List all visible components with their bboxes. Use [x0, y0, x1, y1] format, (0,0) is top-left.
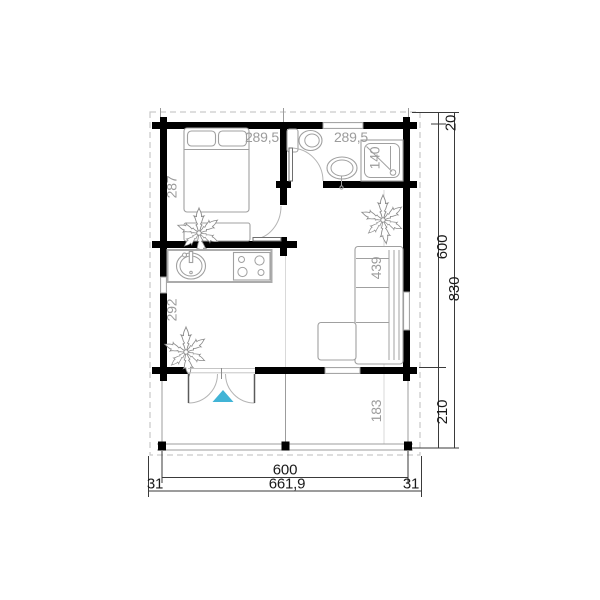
window	[325, 368, 360, 374]
railing-post	[158, 442, 166, 451]
window	[404, 292, 410, 330]
dim-label-terrace-depth-inner: 183	[368, 399, 384, 422]
dim-label-terrace-depth: 210	[434, 400, 451, 424]
dim-label-living-depth-right: 439	[368, 256, 384, 279]
window	[161, 277, 167, 293]
toilet-bowl	[299, 131, 322, 151]
plant-icon	[360, 195, 404, 244]
railing-post	[404, 442, 412, 451]
dim-label-roof-overhang-top: 20	[443, 115, 460, 131]
dim-label-living-depth-left: 292	[164, 298, 180, 321]
dim-label-cabin-depth: 600	[434, 235, 451, 259]
pillow	[188, 131, 216, 146]
door-leaf	[253, 238, 281, 242]
bedroom	[176, 128, 250, 257]
door-swing-arc	[253, 206, 281, 239]
bedroom-door	[253, 206, 281, 241]
dim-label-total-width: 661,9	[269, 476, 306, 493]
bathroom-door	[289, 148, 323, 181]
faucet-icon	[189, 252, 192, 263]
cooktop	[234, 253, 271, 281]
terrace-railing	[157, 442, 413, 451]
window	[323, 123, 363, 129]
floor-plan-canvas: 289,5 289,5 287 140 439 292 183 20 600 8…	[0, 0, 600, 600]
dim-label-shower-width: 140	[367, 146, 383, 169]
sofa	[318, 247, 403, 365]
dim-label-total-depth: 830	[446, 277, 463, 301]
entrance-marker-triangle	[213, 390, 234, 402]
dim-label-bedroom-width: 289,5	[245, 129, 279, 145]
door-swing-arc	[291, 148, 324, 181]
dim-label-bedroom-depth: 287	[164, 175, 180, 198]
dim-label-overhang-right: 31	[403, 476, 419, 493]
railing-post	[282, 442, 290, 451]
pillow	[219, 131, 247, 146]
door-leaf	[289, 148, 293, 181]
terrace-double-door	[188, 368, 255, 403]
door-swing-arc	[189, 374, 218, 403]
dim-label-overhang-left: 31	[147, 476, 163, 493]
kitchen-counter	[168, 250, 272, 282]
floor-plan-drawing: 289,5 289,5 287 140 439 292 183 20 600 8…	[0, 0, 600, 600]
chaise	[318, 323, 356, 361]
dim-label-bathroom-width: 289,5	[334, 129, 368, 145]
